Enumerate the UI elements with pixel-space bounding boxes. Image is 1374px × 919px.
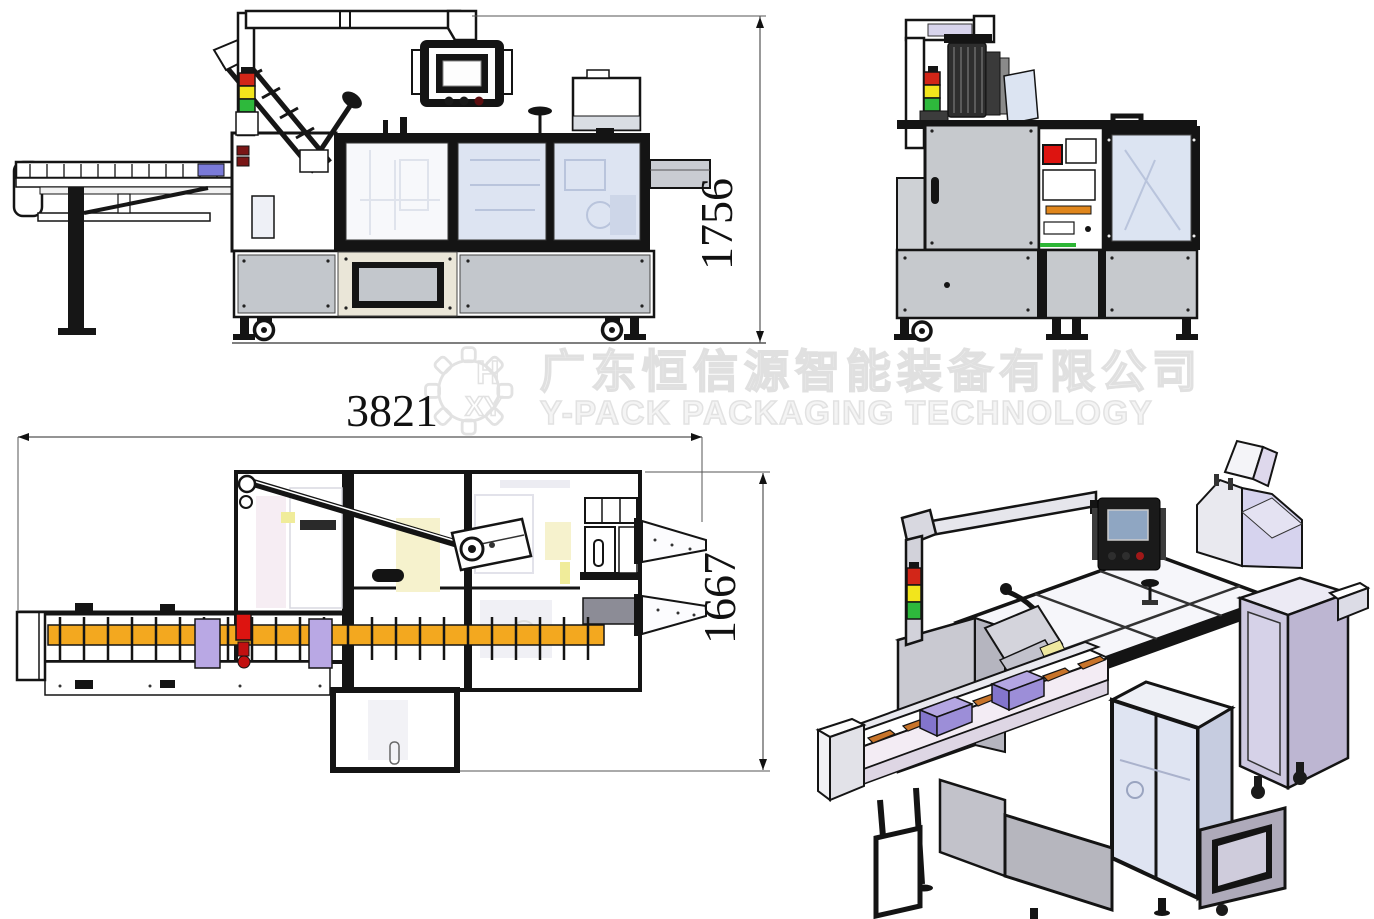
machine-drawing: 1756 (0, 0, 1374, 919)
signal-tower-side (236, 67, 258, 135)
signal-light-red (239, 73, 255, 86)
hmi-panel (412, 40, 512, 107)
dimension-height-label: 1756 (691, 178, 742, 270)
feet-end (894, 318, 1198, 340)
top-unit-iso (1197, 441, 1302, 568)
product-box-plan (309, 619, 332, 668)
product-box-plan (195, 619, 220, 668)
hmi-panel-iso (1092, 498, 1166, 570)
dimension-length-label: 3821 (346, 385, 438, 436)
hmi-button (445, 97, 454, 106)
door-handle (931, 177, 939, 204)
control-column-end (1039, 128, 1103, 250)
window-module-end (1103, 116, 1200, 250)
emergency-stop (1043, 145, 1062, 164)
carton-magazine-plan (333, 690, 457, 770)
machine-body-plan (236, 472, 706, 690)
drawing-canvas: H XY 广东恒信源智能装备有限公司 Y-PACK PACKAGING TECH… (0, 0, 1374, 919)
signal-light-yellow (239, 86, 255, 99)
dimension-width-label: 1667 (694, 552, 745, 644)
hmi-screen-iso (1108, 510, 1148, 540)
base-cabinet-side (234, 251, 654, 317)
stand-frame-iso (876, 828, 920, 916)
hmi-button (460, 97, 469, 106)
plan-view: 3821 1667 (17, 385, 770, 771)
motor-assembly-end (944, 34, 1038, 124)
hmi-button-red (475, 97, 484, 106)
door-end (925, 125, 1039, 250)
casters-side (233, 317, 646, 340)
right-module-iso (1240, 578, 1368, 799)
side-elevation-view: 1756 (14, 11, 766, 343)
side-panel-end (897, 178, 925, 250)
signal-light-green (239, 99, 255, 112)
handle-plan (372, 569, 404, 582)
signal-tower-end (920, 66, 948, 128)
signal-tower-iso (907, 562, 921, 619)
base-end (897, 250, 1197, 318)
isometric-view (818, 441, 1368, 919)
end-elevation-view (894, 16, 1200, 340)
